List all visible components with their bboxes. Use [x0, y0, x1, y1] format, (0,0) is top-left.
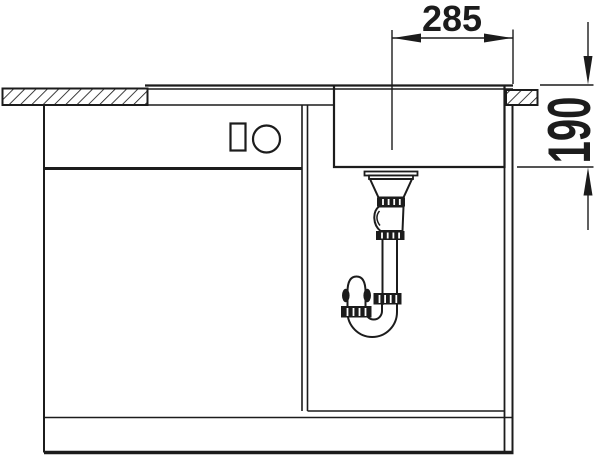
trap-nut-left-riser — [341, 306, 372, 318]
trap-nut-right-riser — [374, 293, 402, 305]
diagram-canvas: 285 190 — [0, 0, 600, 457]
strainer-cup — [370, 179, 412, 198]
countertop — [3, 89, 538, 106]
arrow-up-icon — [584, 168, 593, 196]
siphon-trap — [341, 198, 405, 337]
countertop-section-right — [506, 90, 538, 105]
base-cabinet — [44, 105, 514, 453]
arrow-down-icon — [584, 56, 593, 85]
dimension-depth-190: 190 — [517, 22, 600, 230]
sink-installation-diagram: 285 190 — [0, 0, 600, 457]
trap-nut-under-strainer — [377, 198, 405, 207]
dimension-depth-label: 190 — [536, 97, 600, 164]
trap-outlet-bend-cap — [348, 277, 366, 293]
dimension-width-label: 285 — [422, 0, 482, 39]
countertop-section-left — [3, 89, 148, 106]
trap-nut-below-elbow — [376, 231, 405, 240]
trap-outlet-nut-right-bump — [363, 289, 371, 303]
trap-elbow — [374, 207, 403, 232]
arrow-right-icon — [484, 34, 512, 43]
sink-rim — [145, 86, 513, 106]
drawer-symbol-rect — [231, 124, 246, 151]
trap-outlet-nut-left-bump — [342, 289, 350, 303]
sink-bowl — [334, 86, 505, 167]
arrow-left-icon — [393, 34, 421, 43]
drawer-symbol-circle — [253, 126, 280, 153]
drain-strainer — [365, 172, 418, 198]
dimension-width-285: 285 — [392, 0, 513, 150]
